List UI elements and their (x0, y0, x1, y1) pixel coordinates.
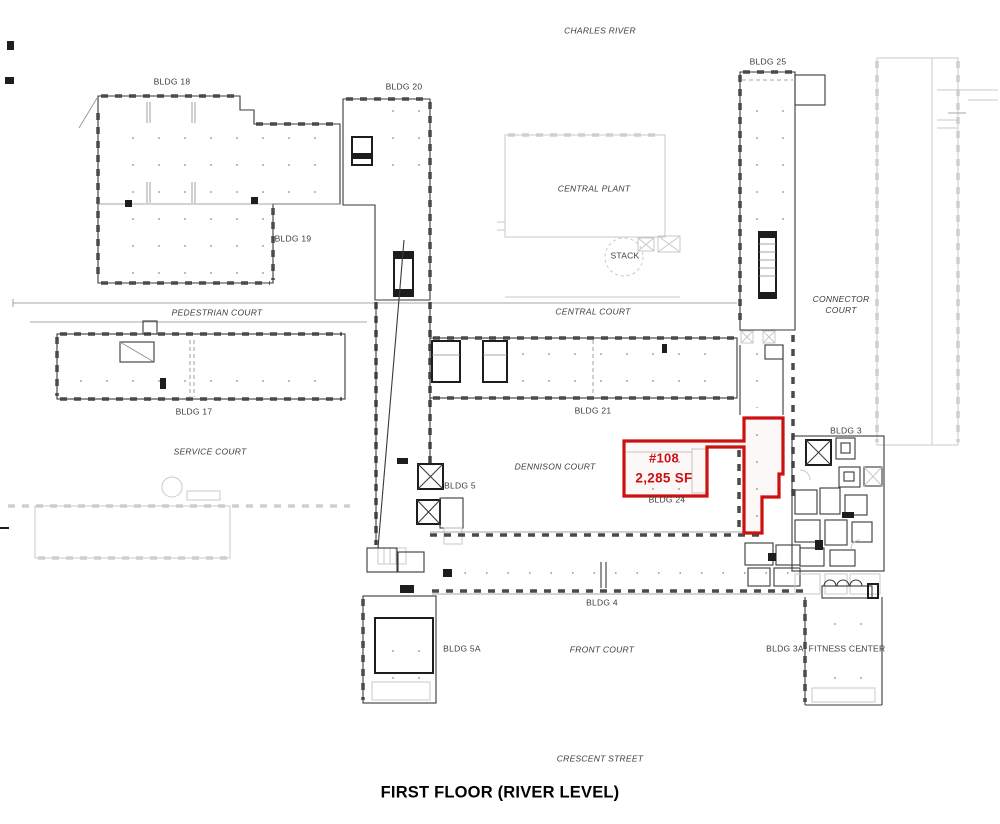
unit-108-area: 2,285 SF (635, 471, 692, 486)
label-bldg3a: BLDG 3A (766, 644, 804, 655)
label-bldg3: BLDG 3 (830, 426, 862, 437)
bldg20-outline (343, 99, 430, 300)
label-bldg17: BLDG 17 (176, 407, 213, 418)
bldg17-outline (57, 321, 345, 399)
label-bldg5a: BLDG 5A (443, 644, 481, 655)
bldg21-outline (430, 338, 737, 398)
unit-108-number: #108 (635, 451, 692, 466)
central-connector-strip (376, 240, 430, 564)
label-bldg21: BLDG 21 (575, 406, 612, 417)
label-fitness-center: FITNESS CENTER (809, 644, 886, 655)
label-bldg4: BLDG 4 (586, 598, 618, 609)
label-service-court: SERVICE COURT (174, 447, 247, 458)
bldg18-bldg19-outline (79, 96, 340, 283)
label-bldg5: BLDG 5 (444, 481, 476, 492)
label-bldg18: BLDG 18 (154, 77, 191, 88)
label-connector-court: CONNECTOR COURT (813, 294, 870, 316)
label-bldg24: BLDG 24 (649, 495, 686, 506)
floor-plan-drawing (0, 0, 1000, 824)
label-pedestrian-court: PEDESTRIAN COURT (172, 308, 263, 319)
label-connector-line1: CONNECTOR (813, 294, 870, 304)
central-plant-outline (497, 135, 680, 276)
bldg4-outline (430, 532, 806, 594)
label-central-plant: CENTRAL PLANT (558, 184, 631, 195)
label-charles-river: CHARLES RIVER (564, 26, 636, 37)
label-front-court: FRONT COURT (570, 645, 634, 656)
label-bldg25: BLDG 25 (750, 57, 787, 68)
map-edge-marks (0, 41, 14, 528)
bldg5a-outline (363, 548, 436, 703)
label-crescent-street: CRESCENT STREET (557, 754, 643, 765)
floor-plan: CHARLES RIVER BLDG 25 BLDG 18 BLDG 20 CE… (0, 0, 1000, 824)
label-bldg20: BLDG 20 (386, 82, 423, 93)
page-title: FIRST FLOOR (RIVER LEVEL) (381, 784, 620, 803)
east-light-building (877, 58, 998, 445)
service-court-objects (8, 477, 350, 558)
label-central-court: CENTRAL COURT (555, 307, 630, 318)
label-connector-line2: COURT (825, 305, 856, 315)
unit-108-label[interactable]: #108 2,285 SF (635, 451, 692, 486)
label-stack: STACK (611, 251, 640, 262)
label-dennison-court: DENNISON COURT (515, 462, 596, 473)
fitness-center-outline (805, 580, 882, 705)
bldg3-outline (792, 436, 884, 594)
label-bldg19: BLDG 19 (275, 234, 312, 245)
